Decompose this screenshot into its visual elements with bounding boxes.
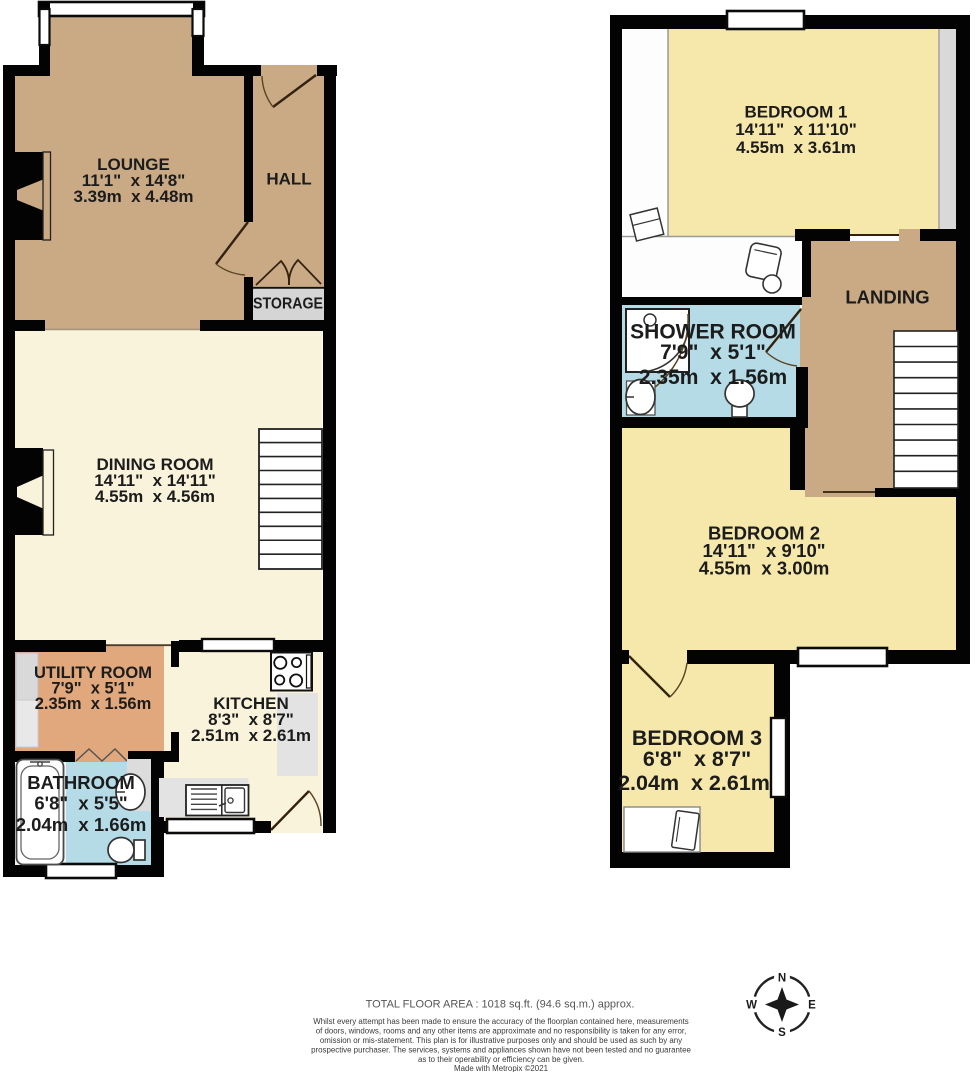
svg-text:S: S <box>778 1027 786 1039</box>
svg-text:LANDING: LANDING <box>845 287 929 308</box>
svg-text:6'8" x 8'7": 6'8" x 8'7" <box>643 747 751 771</box>
svg-text:2.51m x 2.61m: 2.51m x 2.61m <box>191 726 311 745</box>
svg-text:E: E <box>808 1000 816 1012</box>
svg-text:N: N <box>778 973 786 985</box>
svg-text:prospective purchaser. The ser: prospective purchaser. The services, sys… <box>311 1046 691 1055</box>
svg-text:W: W <box>746 1000 757 1012</box>
svg-text:TOTAL FLOOR AREA : 1018 sq.ft.: TOTAL FLOOR AREA : 1018 sq.ft. (94.6 sq.… <box>366 999 635 1011</box>
svg-text:2.04m x 1.66m: 2.04m x 1.66m <box>16 814 147 835</box>
svg-text:Whilst every attempt has been: Whilst every attempt has been made to en… <box>313 1017 689 1026</box>
svg-text:4.55m x 3.61m: 4.55m x 3.61m <box>736 138 856 157</box>
svg-text:2.35m x 1.56m: 2.35m x 1.56m <box>639 366 787 389</box>
svg-text:STORAGE: STORAGE <box>253 296 323 313</box>
svg-text:4.55m x 3.00m: 4.55m x 3.00m <box>699 557 830 578</box>
svg-text:BATHROOM: BATHROOM <box>27 772 135 793</box>
svg-text:as to their operability or eff: as to their operability or efficiency ca… <box>418 1055 584 1064</box>
svg-text:6'8" x 5'5": 6'8" x 5'5" <box>34 793 127 814</box>
svg-text:3.39m x 4.48m: 3.39m x 4.48m <box>73 187 193 206</box>
svg-text:HALL: HALL <box>266 170 311 189</box>
svg-text:BEDROOM 1: BEDROOM 1 <box>745 102 848 121</box>
svg-text:7'9" x 5'1": 7'9" x 5'1" <box>660 341 766 364</box>
svg-text:omission or mis-statement. Thi: omission or mis-statement. This plan is … <box>320 1036 682 1045</box>
svg-text:4.55m x 4.56m: 4.55m x 4.56m <box>95 487 215 506</box>
svg-text:2.04m x 2.61m: 2.04m x 2.61m <box>618 771 770 795</box>
svg-text:2.35m x 1.56m: 2.35m x 1.56m <box>35 695 152 713</box>
svg-text:of doors, windows, rooms and a: of doors, windows, rooms and any other i… <box>316 1027 687 1036</box>
svg-text:Made with Metropix ©2021: Made with Metropix ©2021 <box>454 1064 548 1072</box>
svg-text:14'11" x 11'10": 14'11" x 11'10" <box>735 120 857 139</box>
